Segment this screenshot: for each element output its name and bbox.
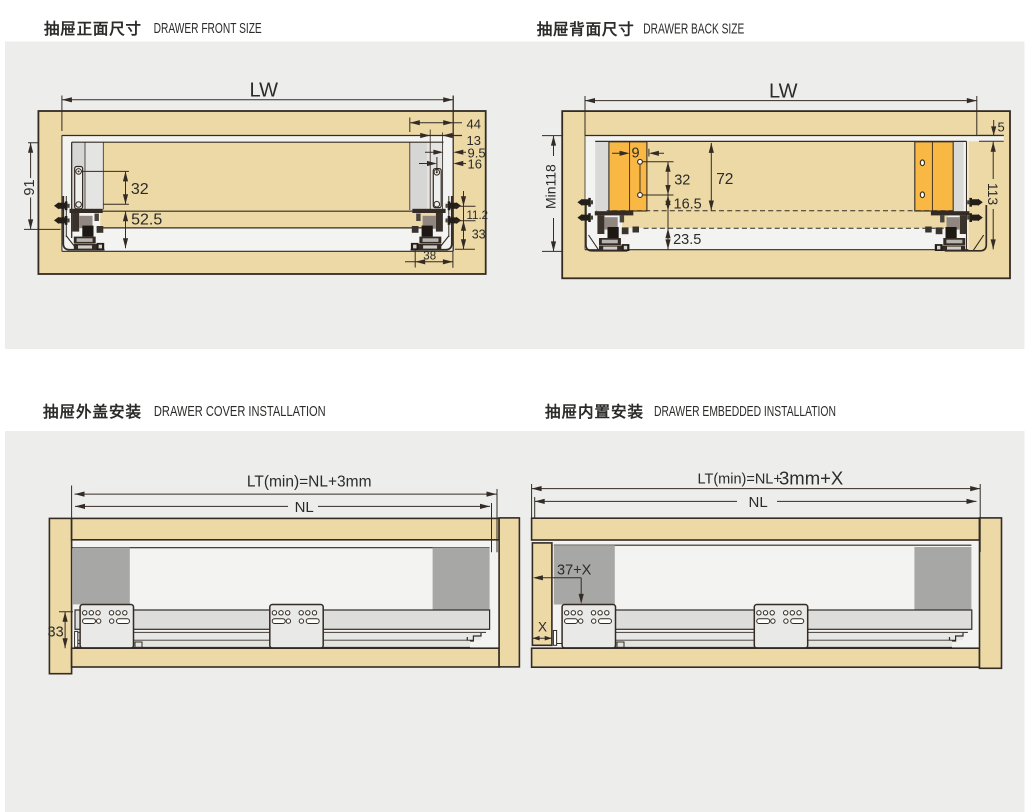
svg-text:DRAWER FRONT SIZE: DRAWER FRONT SIZE <box>154 19 262 37</box>
svg-text:抽屉正面尺寸: 抽屉正面尺寸 <box>44 19 142 38</box>
svg-text:91: 91 <box>22 179 38 195</box>
svg-text:NL: NL <box>295 499 314 516</box>
svg-text:44: 44 <box>467 116 481 131</box>
svg-text:9: 9 <box>632 145 640 161</box>
svg-text:72: 72 <box>716 171 733 188</box>
svg-text:LW: LW <box>769 81 798 103</box>
svg-text:DRAWER COVER INSTALLATION: DRAWER COVER INSTALLATION <box>154 402 326 419</box>
svg-text:LW: LW <box>250 80 279 102</box>
svg-text:33: 33 <box>48 625 64 641</box>
svg-text:DRAWER EMBEDDED INSTALLATION: DRAWER EMBEDDED INSTALLATION <box>654 402 836 419</box>
svg-text:Min118: Min118 <box>543 164 559 209</box>
svg-text:11.2: 11.2 <box>467 210 489 222</box>
svg-text:33: 33 <box>472 228 486 242</box>
svg-text:38: 38 <box>423 251 436 263</box>
svg-text:3mm+X: 3mm+X <box>779 468 843 489</box>
svg-text:NL: NL <box>749 494 768 511</box>
svg-text:32: 32 <box>131 181 149 198</box>
svg-text:LT(min)=NL+: LT(min)=NL+ <box>698 472 782 488</box>
svg-text:抽屉内置安装: 抽屉内置安装 <box>545 402 644 421</box>
svg-text:52.5: 52.5 <box>131 211 162 228</box>
svg-text:抽屉外盖安装: 抽屉外盖安装 <box>43 402 142 421</box>
svg-text:X: X <box>538 620 547 635</box>
svg-text:DRAWER BACK SIZE: DRAWER BACK SIZE <box>643 19 744 37</box>
svg-text:16.5: 16.5 <box>674 196 702 212</box>
svg-text:37+X: 37+X <box>557 563 592 579</box>
svg-text:16: 16 <box>468 157 482 172</box>
svg-text:5: 5 <box>998 120 1005 135</box>
svg-text:113: 113 <box>985 183 1001 206</box>
svg-text:23.5: 23.5 <box>673 232 701 248</box>
svg-text:抽屉背面尺寸: 抽屉背面尺寸 <box>537 20 635 39</box>
svg-text:LT(min)=NL+3mm: LT(min)=NL+3mm <box>247 474 372 491</box>
svg-text:32: 32 <box>674 173 690 189</box>
